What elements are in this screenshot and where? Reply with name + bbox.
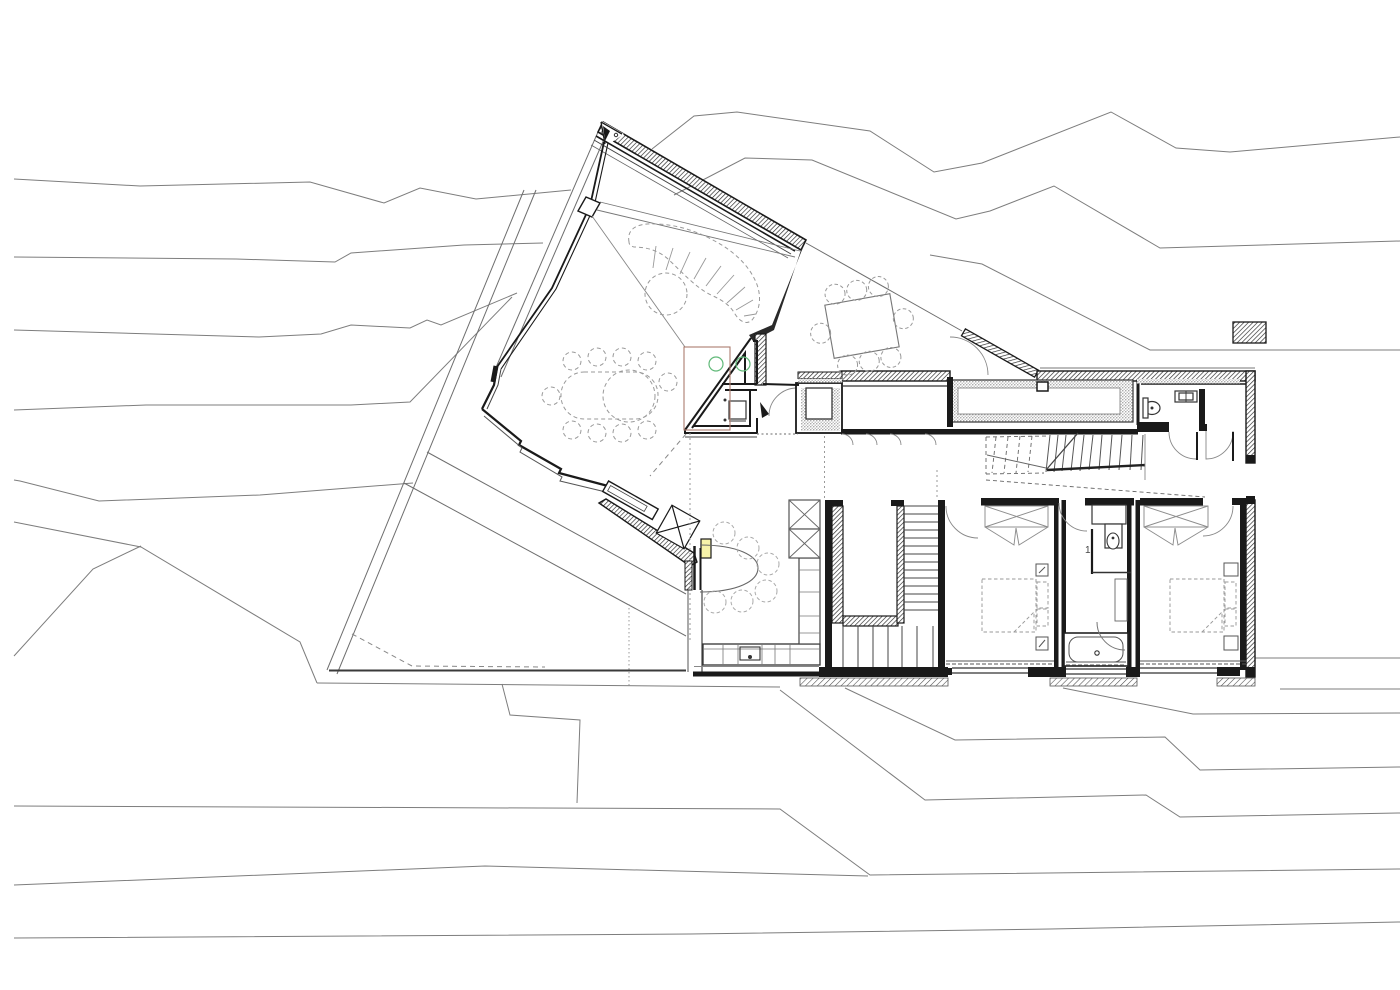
svg-text:1: 1 — [1085, 545, 1091, 556]
